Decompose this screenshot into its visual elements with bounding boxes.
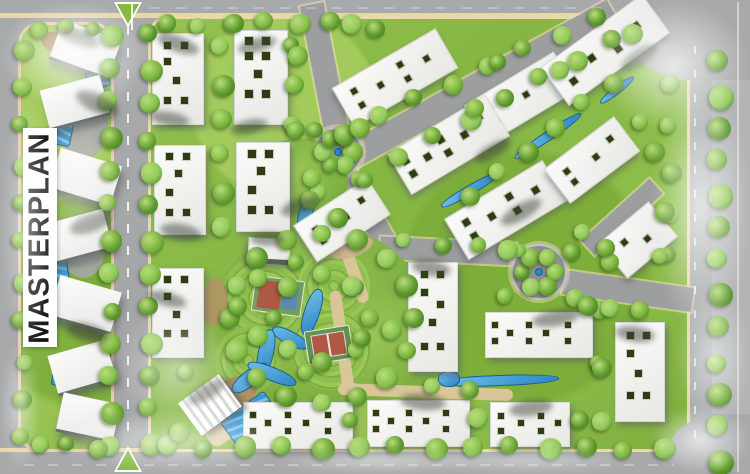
palm-shadow [497, 194, 545, 231]
palm-shadow [472, 135, 514, 167]
fog-overlay [0, 340, 40, 474]
palm-shadow [278, 192, 321, 221]
fog-overlay [116, 306, 236, 434]
fog-overlay [650, 406, 750, 474]
fog-overlay [676, 286, 750, 426]
palm-shadow [508, 397, 554, 419]
fog-overlay [420, 448, 640, 474]
palm-shadow [236, 33, 278, 57]
masterplan-canvas: MASTERPLAN [0, 0, 750, 474]
palm-shadow [229, 116, 269, 138]
palm-shadow [155, 29, 202, 59]
palm-shadow [410, 257, 452, 280]
palm-shadow [149, 109, 191, 130]
palm-shadow [250, 232, 286, 246]
palm-shadow [614, 323, 656, 344]
palm-shadow [159, 220, 203, 243]
fog-overlay [36, 116, 122, 266]
palm-shadow [64, 319, 111, 348]
palm-shadow [399, 392, 446, 412]
palm-shadow [531, 306, 581, 330]
